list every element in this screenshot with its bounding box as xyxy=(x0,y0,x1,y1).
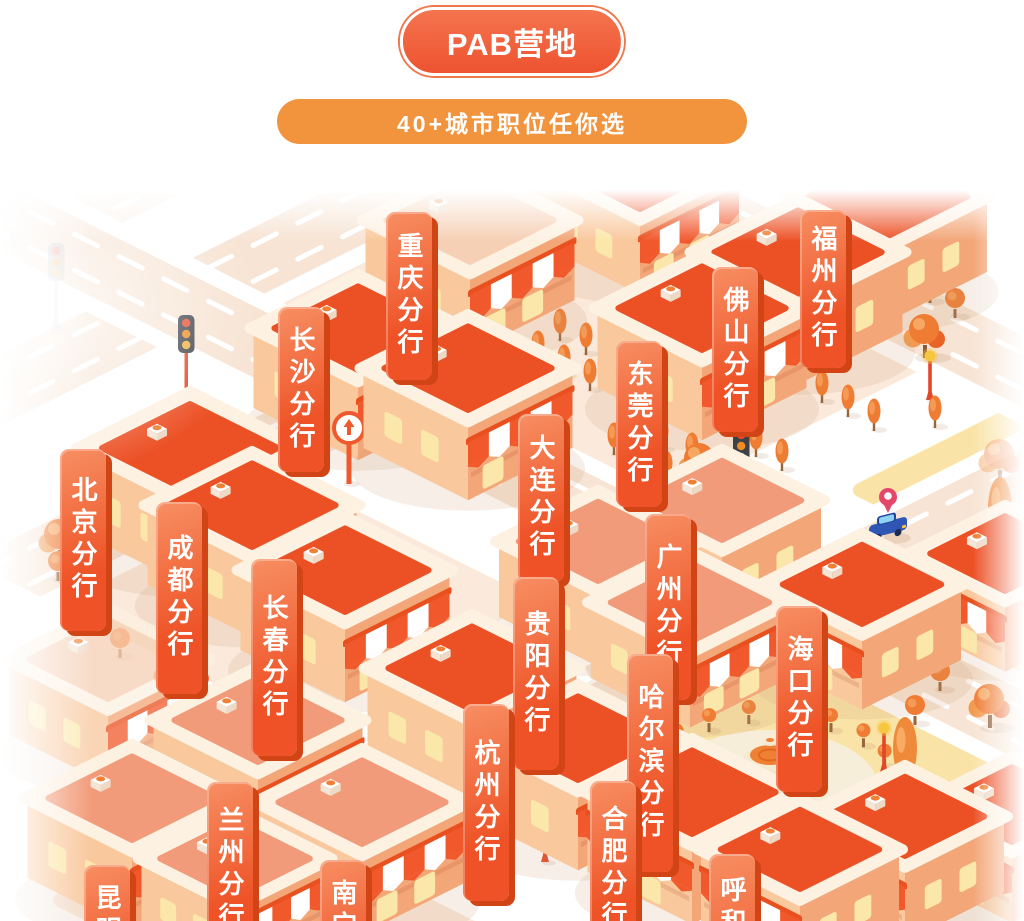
branch-sign-label: 广州分行 xyxy=(655,543,681,671)
branch-sign-label: 重庆分行 xyxy=(396,232,422,360)
branch-sign-label: 南宁分行 xyxy=(330,879,356,921)
branch-sign-label: 昆明分行 xyxy=(94,884,120,921)
branch-sign-label: 长春分行 xyxy=(261,594,287,722)
branch-sign-fuzhou[interactable]: 福州分行 xyxy=(800,210,846,368)
branch-sign-label: 福州分行 xyxy=(810,225,836,353)
page-title: PAB营地 xyxy=(447,27,577,62)
city-map: 重庆分行福州分行长沙分行佛山分行东莞分行大连分行北京分行成都分行长春分行广州分行… xyxy=(0,190,1024,921)
branch-sign-haikou[interactable]: 海口分行 xyxy=(776,606,822,792)
branch-sign-label: 呼和浩特分行 xyxy=(719,876,745,921)
branch-sign-lanzhou[interactable]: 兰州分行 xyxy=(207,782,253,921)
branch-sign-hangzhou[interactable]: 杭州分行 xyxy=(463,704,509,901)
branch-sign-label: 北京分行 xyxy=(70,476,96,604)
page: PAB营地 40+城市职位任你选 重庆分行福州分行长沙分行佛山分行东莞分行大连分… xyxy=(0,0,1024,921)
branch-sign-label: 合肥分行 xyxy=(600,805,626,921)
branch-sign-nanning[interactable]: 南宁分行 xyxy=(320,860,366,921)
branch-sign-label: 海口分行 xyxy=(786,635,812,763)
branch-sign-dongguan[interactable]: 东莞分行 xyxy=(616,341,662,507)
branch-sign-changsha[interactable]: 长沙分行 xyxy=(278,307,324,472)
branch-sign-label: 成都分行 xyxy=(166,534,192,662)
branch-sign-foshan[interactable]: 佛山分行 xyxy=(712,267,758,432)
page-title-badge: PAB营地 xyxy=(400,7,624,76)
branch-sign-huhehaote[interactable]: 呼和浩特分行 xyxy=(709,854,755,921)
branch-sign-changchun[interactable]: 长春分行 xyxy=(251,559,297,756)
branch-sign-chongqing[interactable]: 重庆分行 xyxy=(386,212,432,380)
subtitle-banner: 40+城市职位任你选 xyxy=(277,99,747,144)
branch-sign-label: 大连分行 xyxy=(528,434,554,562)
subtitle-text: 40+城市职位任你选 xyxy=(397,105,627,139)
branch-sign-chengdu[interactable]: 成都分行 xyxy=(156,502,202,694)
branch-sign-label: 贵阳分行 xyxy=(523,610,549,738)
branch-sign-label: 东莞分行 xyxy=(626,360,652,488)
branch-sign-dalian[interactable]: 大连分行 xyxy=(518,414,564,582)
branch-sign-label: 杭州分行 xyxy=(473,739,499,867)
branch-sign-label: 哈尔滨分行 xyxy=(637,683,663,843)
branch-sign-kunming[interactable]: 昆明分行 xyxy=(84,865,130,921)
branch-signs-layer: 重庆分行福州分行长沙分行佛山分行东莞分行大连分行北京分行成都分行长春分行广州分行… xyxy=(0,190,1024,921)
branch-sign-label: 长沙分行 xyxy=(288,326,314,454)
branch-sign-label: 兰州分行 xyxy=(217,806,243,921)
branch-sign-hefei[interactable]: 合肥分行 xyxy=(590,781,636,921)
branch-sign-label: 佛山分行 xyxy=(722,286,748,414)
branch-sign-beijing[interactable]: 北京分行 xyxy=(60,449,106,631)
branch-sign-guiyang[interactable]: 贵阳分行 xyxy=(513,577,559,770)
